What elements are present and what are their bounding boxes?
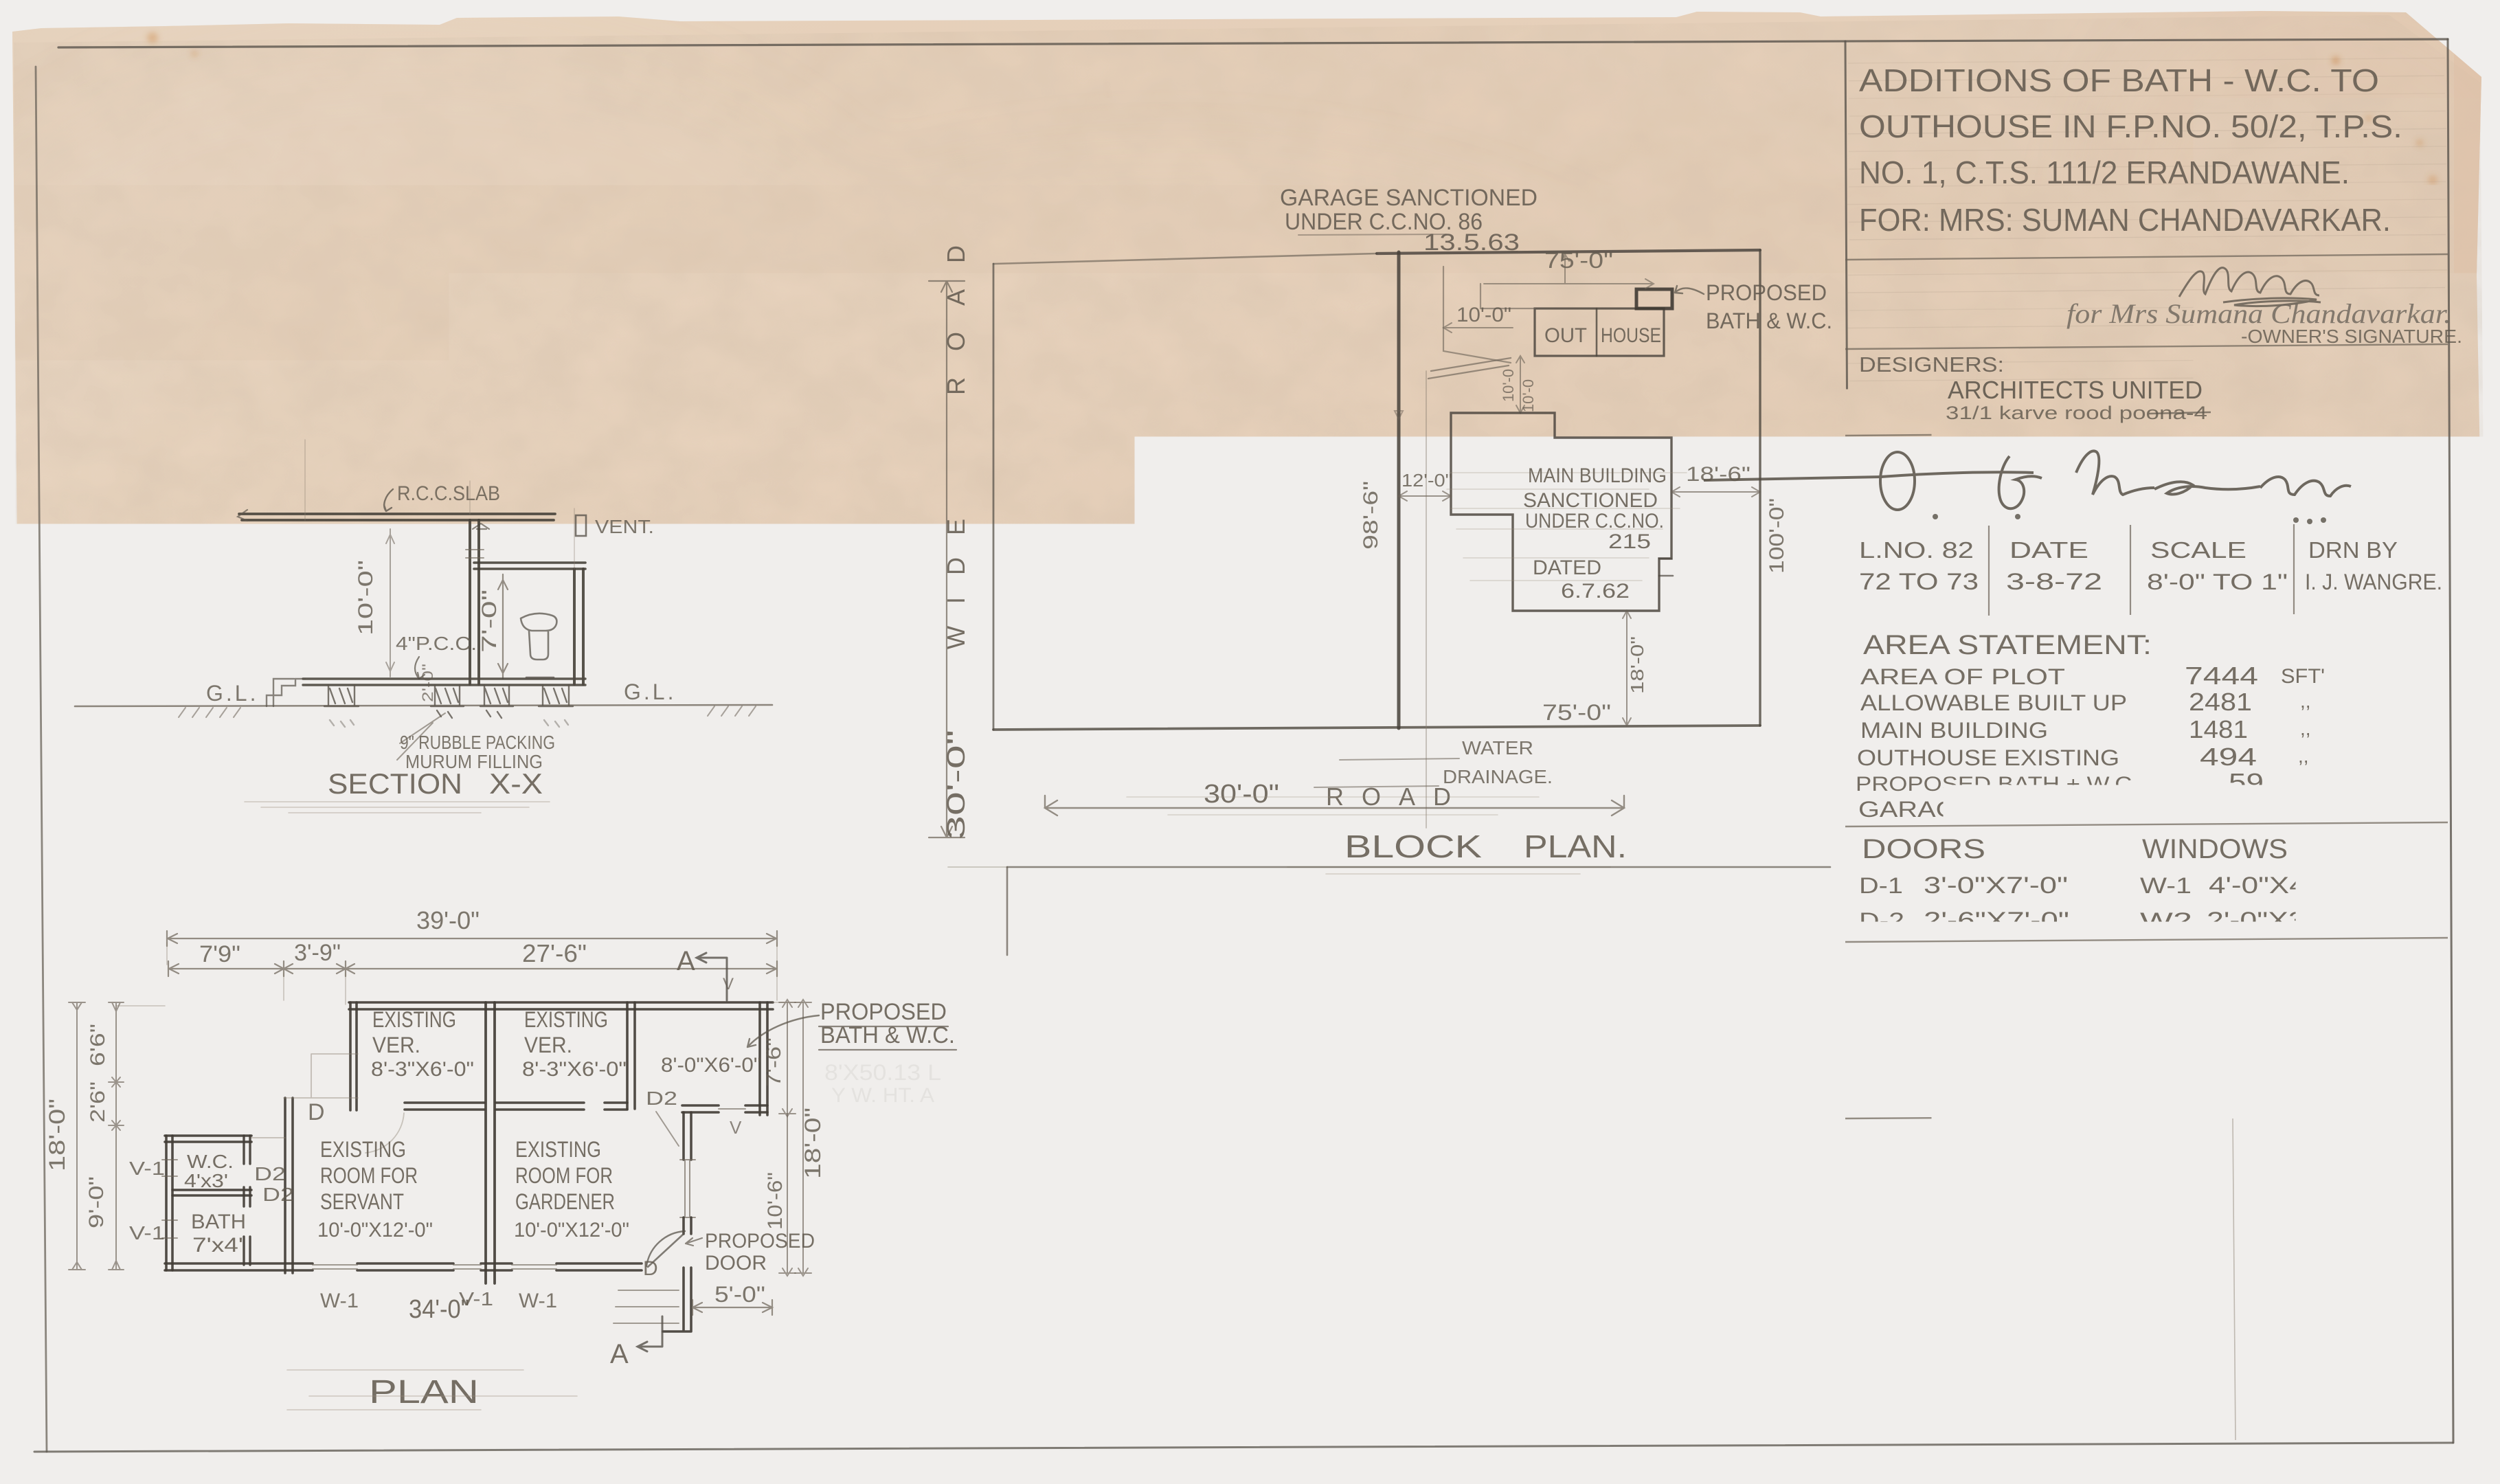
- svg-text:PLAN.: PLAN.: [1524, 829, 1627, 864]
- svg-text:4'-0"X4'-6": 4'-0"X4'-6": [2209, 873, 2350, 899]
- svg-text:30'-0": 30'-0": [942, 730, 970, 840]
- svg-text:W-1: W-1: [2140, 873, 2192, 898]
- svg-text:GARDENER: GARDENER: [515, 1189, 615, 1214]
- svg-text:2481: 2481: [2189, 688, 2252, 716]
- svg-text:I. J. WANGRE.: I. J. WANGRE.: [2305, 570, 2442, 594]
- svg-text:SERVANT: SERVANT: [320, 1189, 404, 1214]
- svg-text:ROUGH SHAHABAD TILING: ROUGH SHAHABAD TILING: [1859, 1028, 2185, 1050]
- svg-text:1481: 1481: [2189, 715, 2248, 743]
- svg-text:VER.: VER.: [372, 1033, 420, 1057]
- svg-text:NO. 1, C.T.S. 111/2 ERANDAWANE: NO. 1, C.T.S. 111/2 ERANDAWANE.: [1859, 155, 2350, 190]
- svg-text:D-2: D-2: [1859, 908, 1904, 933]
- svg-text:ROOM FOR: ROOM FOR: [320, 1163, 418, 1188]
- svg-text:8'-0"X6'-0": 8'-0"X6'-0": [661, 1054, 761, 1077]
- svg-text:EXISTING: EXISTING: [524, 1007, 608, 1032]
- svg-text:75'-0": 75'-0": [1542, 700, 1611, 725]
- svg-text:R.R.MASONRY IN C.M & B.B. IN C: R.R.MASONRY IN C.M & B.B. IN C.M. 1:6: [1859, 1004, 2361, 1026]
- svg-text:OUT: OUT: [1544, 324, 1587, 347]
- svg-text:SANCTIONED: SANCTIONED: [1523, 489, 1658, 512]
- svg-text:D: D: [308, 1099, 325, 1125]
- svg-text:18'-0": 18'-0": [800, 1108, 825, 1179]
- svg-text:W.C.: W.C.: [187, 1151, 234, 1172]
- svg-text:3'-0"X7'-0": 3'-0"X7'-0": [1924, 873, 2068, 899]
- svg-text:G.L.: G.L.: [206, 681, 258, 706]
- svg-text:10'-0"X12'-0": 10'-0"X12'-0": [317, 1219, 433, 1241]
- svg-text:7'-6": 7'-6": [763, 1037, 785, 1087]
- svg-text:2'-0"X3'-0": 2'-0"X3'-0": [2207, 908, 2350, 934]
- svg-text:6'6": 6'6": [87, 1024, 109, 1066]
- svg-text:UNDER C.C.NO.: UNDER C.C.NO.: [1525, 510, 1664, 532]
- svg-text:7444: 7444: [2185, 662, 2258, 690]
- svg-text:ROAD: ROAD: [942, 219, 970, 395]
- svg-text:,,: ,,: [2300, 718, 2311, 739]
- svg-text:27'-6": 27'-6": [522, 939, 587, 967]
- svg-text:SCALE: SCALE: [2150, 537, 2246, 563]
- svg-text:D: D: [643, 1257, 658, 1280]
- svg-text:EXISTING: EXISTING: [372, 1007, 456, 1032]
- svg-text:200: 200: [2203, 794, 2273, 822]
- svg-text:-OWNER'S SIGNATURE.: -OWNER'S SIGNATURE.: [2241, 326, 2462, 347]
- svg-text:V: V: [730, 1117, 742, 1138]
- svg-text:98'-6": 98'-6": [1360, 481, 1382, 550]
- svg-text:SFT': SFT': [2281, 665, 2325, 688]
- svg-text:,,: ,,: [2298, 745, 2309, 767]
- svg-text:7'x4': 7'x4': [192, 1234, 243, 1257]
- svg-text:WINDOWS: WINDOWS: [2142, 834, 2288, 864]
- svg-text:18'-0": 18'-0": [45, 1099, 69, 1171]
- svg-text:100'-0": 100'-0": [1766, 498, 1788, 574]
- svg-text:VER.: VER.: [524, 1033, 572, 1057]
- svg-text:10'-0": 10'-0": [354, 560, 377, 636]
- svg-text:2'6": 2'6": [87, 1081, 109, 1123]
- svg-text:G.L.: G.L.: [624, 679, 676, 704]
- svg-text:VENT.: VENT.: [595, 516, 654, 537]
- svg-text:494: 494: [2200, 743, 2257, 771]
- svg-text:V-1: V-1: [129, 1158, 165, 1179]
- svg-text:EXISTING: EXISTING: [515, 1137, 601, 1162]
- svg-text:2'-6"X7'-0": 2'-6"X7'-0": [1924, 908, 2069, 934]
- svg-text:72 TO 73: 72 TO 73: [1859, 569, 1979, 595]
- svg-text:V-1: V-1: [459, 1288, 493, 1309]
- svg-text:3'-9": 3'-9": [294, 940, 341, 966]
- svg-text:12'-6": 12'-6": [231, 560, 254, 642]
- svg-text:T.W. WINDOWS & DOORS.: T.W. WINDOWS & DOORS.: [1859, 1079, 2133, 1101]
- svg-text:D2: D2: [262, 1184, 294, 1205]
- svg-text:2'-0": 2'-0": [419, 664, 436, 702]
- svg-text:DRN BY: DRN BY: [2308, 537, 2398, 563]
- svg-text:D-1: D-1: [1859, 873, 1903, 898]
- svg-text:BATH & W.C.: BATH & W.C.: [1706, 308, 1832, 333]
- svg-text:9'-0": 9'-0": [85, 1176, 108, 1228]
- svg-text:MAIN BUILDING: MAIN BUILDING: [1528, 464, 1667, 487]
- svg-text:V-1: V-1: [129, 1222, 165, 1244]
- svg-text:39'-0": 39'-0": [416, 906, 480, 934]
- svg-text:D2: D2: [254, 1163, 286, 1184]
- svg-text:V: V: [723, 975, 734, 993]
- svg-text:DATED: DATED: [1533, 556, 1601, 579]
- svg-text:8'-3"X6'-0": 8'-3"X6'-0": [522, 1058, 627, 1081]
- svg-text:ADDITIONS OF BATH - W.C. TO: ADDITIONS OF BATH - W.C. TO: [1859, 63, 2379, 98]
- svg-text:18'-0": 18'-0": [1627, 636, 1647, 694]
- svg-text:GARAGE SANCTIONED: GARAGE SANCTIONED: [1280, 185, 1538, 211]
- svg-text:GARAGE: GARAGE: [1858, 797, 1975, 822]
- svg-text:SECTION: SECTION: [328, 767, 462, 800]
- svg-text:ROOM FOR: ROOM FOR: [515, 1163, 613, 1188]
- svg-text:W2: W2: [2140, 908, 2192, 933]
- svg-text:10'-0"X12'-0": 10'-0"X12'-0": [514, 1219, 629, 1241]
- svg-text:,,: ,,: [2305, 797, 2316, 818]
- svg-text:A: A: [677, 946, 695, 976]
- svg-text:OUTHOUSE EXISTING: OUTHOUSE EXISTING: [1857, 745, 2119, 770]
- svg-text:AREA STATEMENT:: AREA STATEMENT:: [1863, 630, 2152, 660]
- svg-text:10'-6": 10'-6": [764, 1172, 787, 1230]
- svg-text:PROPOSED: PROPOSED: [820, 999, 947, 1025]
- svg-text:59: 59: [2229, 768, 2264, 796]
- svg-text:,,: ,,: [2300, 690, 2311, 712]
- svg-text:18'-6": 18'-6": [1686, 463, 1750, 486]
- svg-text:D2: D2: [646, 1088, 677, 1109]
- svg-text:MAIN BUILDING: MAIN BUILDING: [1860, 718, 2048, 743]
- svg-text:ARCHITECTS UNITED: ARCHITECTS UNITED: [1948, 376, 2203, 404]
- svg-text:PROPOSED: PROPOSED: [1706, 280, 1827, 305]
- svg-text:75'-0": 75'-0": [1544, 248, 1613, 273]
- svg-text:ALLOWABLE BUILT UP: ALLOWABLE BUILT UP: [1860, 690, 2127, 715]
- svg-text:BLOCK: BLOCK: [1344, 829, 1482, 864]
- svg-text:3-8-72: 3-8-72: [2006, 569, 2102, 595]
- svg-text:for Mrs Sumana Chandavarkar.: for Mrs Sumana Chandavarkar.: [2067, 298, 2451, 329]
- svg-text:OUTHOUSE IN F.P.NO. 50/2, T.P: OUTHOUSE IN F.P.NO. 50/2, T.P.S.: [1859, 109, 2402, 144]
- svg-text:7'-0": 7'-0": [478, 589, 501, 653]
- svg-text:R.C.C.SLAB: R.C.C.SLAB: [397, 482, 500, 505]
- svg-text:W-1: W-1: [320, 1290, 359, 1312]
- svg-text:SPECIFICATIONS: SPECIFICATIONS: [1865, 953, 2181, 985]
- svg-text:8'-0" TO 1": 8'-0" TO 1": [2147, 570, 2288, 594]
- svg-text:X-X: X-X: [489, 767, 543, 800]
- svg-text:BATH: BATH: [191, 1211, 246, 1233]
- svg-text:8'X50.13 L: 8'X50.13 L: [824, 1060, 941, 1085]
- svg-text:9" RUBBLE PACKING: 9" RUBBLE PACKING: [400, 732, 555, 753]
- svg-text:10'-0: 10'-0: [1520, 379, 1537, 412]
- svg-text:W-1: W-1: [519, 1290, 557, 1312]
- svg-text:12'-0": 12'-0": [1401, 470, 1452, 491]
- svg-text:DOOR: DOOR: [705, 1252, 767, 1274]
- svg-text:FOR: MRS: SUMAN CHANDAVARKAR.: FOR: MRS: SUMAN CHANDAVARKAR.: [1859, 202, 2391, 238]
- svg-text:8'-3"X6'-0": 8'-3"X6'-0": [371, 1058, 474, 1081]
- svg-text:6.7.62: 6.7.62: [1561, 580, 1630, 603]
- svg-text:EXISTING: EXISTING: [320, 1137, 406, 1162]
- svg-text:AREA OF PLOT: AREA OF PLOT: [1860, 664, 2065, 689]
- svg-text:10'-0: 10'-0: [1500, 369, 1517, 402]
- svg-text:DESIGNERS:: DESIGNERS:: [1859, 352, 2004, 376]
- svg-text:A: A: [610, 1339, 629, 1369]
- svg-text:WATER: WATER: [1462, 737, 1533, 758]
- svg-text:Y W. HT. A: Y W. HT. A: [831, 1084, 934, 1107]
- svg-text:215: 215: [1608, 530, 1651, 553]
- svg-text:L.NO. 82: L.NO. 82: [1859, 537, 1974, 563]
- svg-text:,,: ,,: [2301, 771, 2312, 792]
- svg-text:5'-0": 5'-0": [714, 1282, 765, 1307]
- svg-text:DOORS: DOORS: [1862, 834, 1985, 864]
- svg-text:DATE: DATE: [2009, 537, 2088, 563]
- svg-text:HOUSE: HOUSE: [1601, 324, 1661, 347]
- svg-text:7'9": 7'9": [199, 941, 240, 967]
- svg-text:PROPOSED: PROPOSED: [705, 1230, 815, 1252]
- svg-text:10'-0": 10'-0": [1456, 304, 1511, 326]
- svg-text:30'-0": 30'-0": [1204, 780, 1279, 809]
- svg-text:R.C.C. SLAB IN 1:2:4: R.C.C. SLAB IN 1:2:4: [1859, 1055, 2126, 1077]
- svg-text:PROPOSED BATH + W.C.: PROPOSED BATH + W.C.: [1856, 773, 2139, 796]
- svg-text:4'x3': 4'x3': [184, 1170, 228, 1191]
- svg-text:PLAN: PLAN: [369, 1374, 479, 1410]
- svg-text:4"P.C.C.: 4"P.C.C.: [396, 633, 477, 654]
- svg-text:WIDE: WIDE: [942, 497, 970, 649]
